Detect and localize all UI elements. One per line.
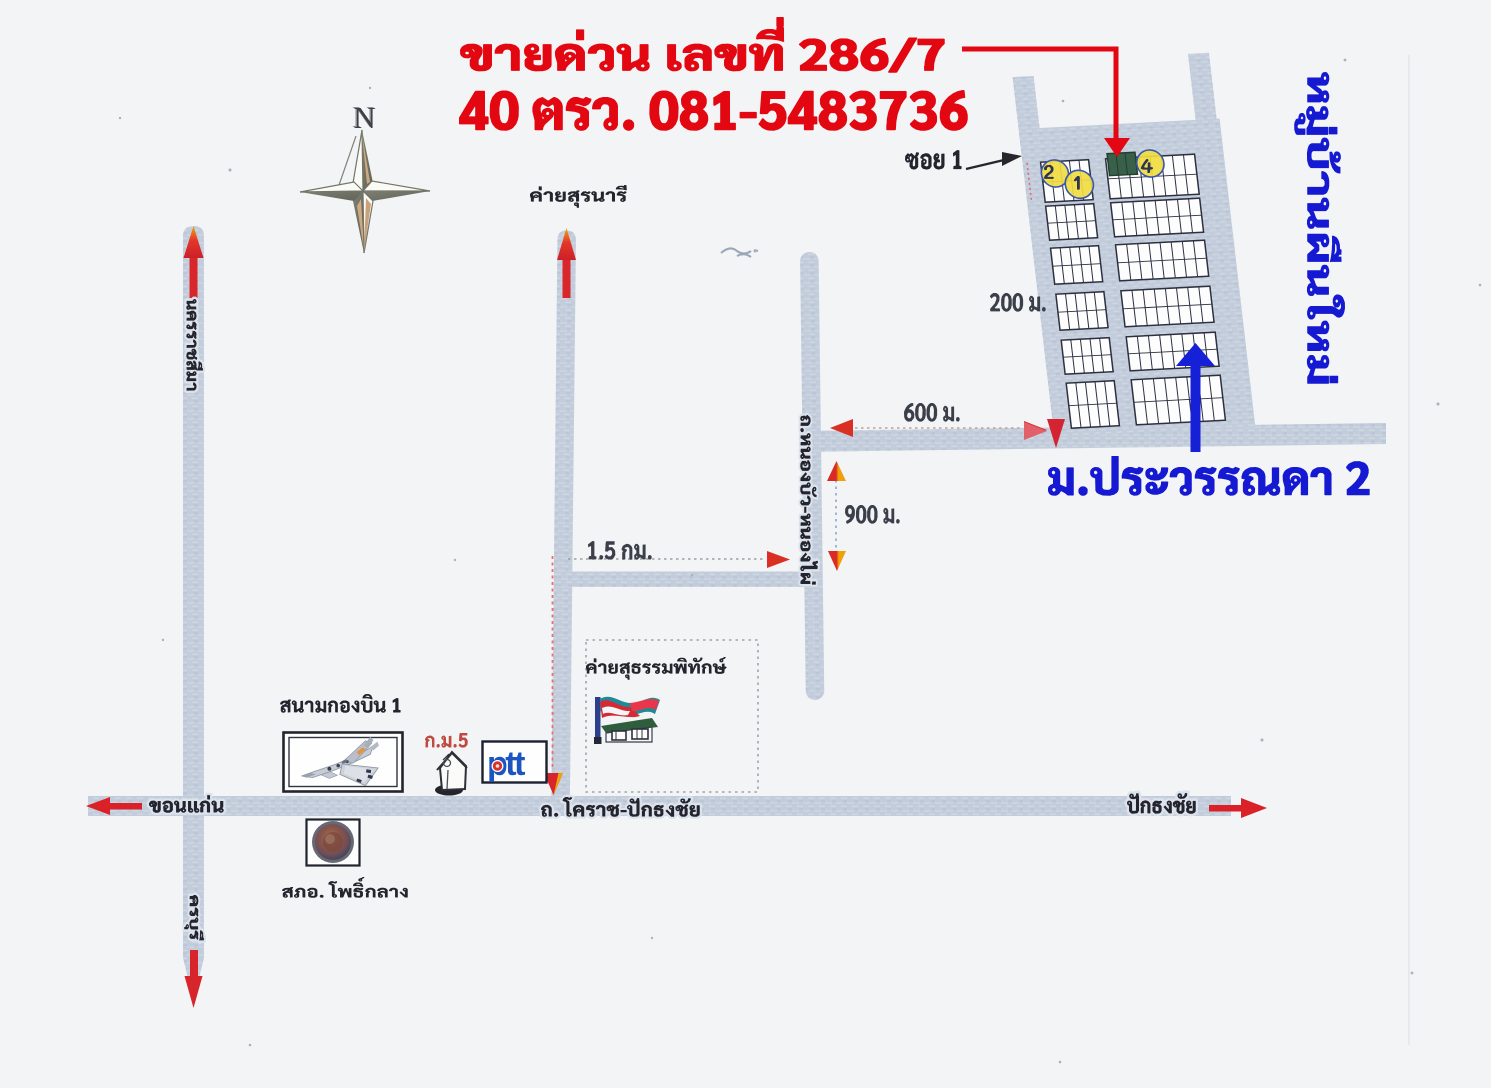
svg-text:N: N bbox=[354, 100, 376, 135]
